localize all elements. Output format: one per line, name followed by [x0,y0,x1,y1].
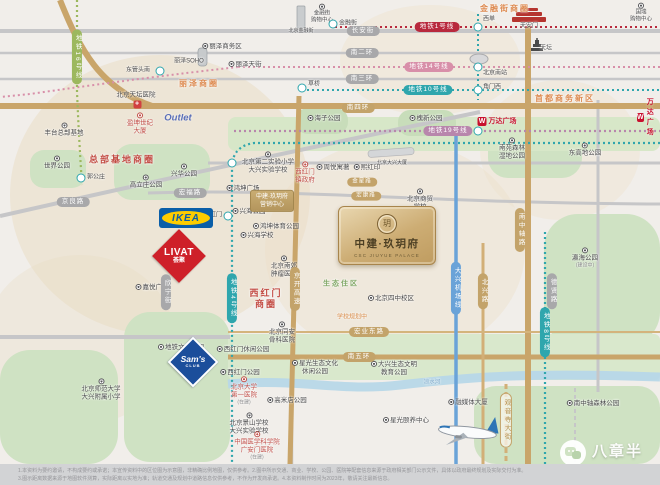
poi-pku-first-hospital: 北京大学第一医院(在建) [231,376,257,406]
pill-metro-line10: 地铁10号线 [403,85,452,95]
poi-donggaodi-park: 东高地公园 [569,142,602,157]
station-guogongzhuang [77,174,86,183]
poi-guanganmen-hospital: 中国医学科学院广安门医院(在建) [234,431,280,461]
poi-yinghai-park: 瀛海公园(建设中) [572,247,598,268]
livat-logo-subtext: 荟聚 [164,258,194,265]
area-shoudushangwu: 首都商务新区 [535,94,595,104]
disclaimer-line-2: 3.图示距离数据来源于地图软件测算，实际距离以实地为准；轨道交通及规划中道路信息… [18,475,648,483]
outlet-logo: Outlet [164,113,191,124]
project-emblem: 玥 [377,214,397,234]
pill-metro-line16: 地铁16号线 [72,29,82,84]
station-xidan [474,23,483,32]
ikea-logo: IKEA [159,208,213,228]
label-daxing-building: 北京大兴大厦 [377,160,407,166]
disclaimer-bar: 1.本资料为要约邀请，不构成要约或承诺；本宣传资料中的区位图为示意图，非精确比例… [0,464,660,485]
pill-jinglianglu: 京良路 [57,197,90,207]
label-guogongzhuang: 郭公庄 [87,174,105,182]
pill-dexianlu: 德贤路 [547,273,557,309]
sams-club-logo: Sam'sCLUB [165,334,221,390]
location-map: IKEA LIVAT荟聚 Sam'sCLUB Outlet W 万达广场 W 万… [0,0,660,485]
station-line19 [474,127,483,136]
poi-xinghai-school: 兴海学校 [241,232,274,240]
label-xidan: 西单 [483,16,495,24]
pill-jingkai-expwy: 京开高速 [290,267,300,311]
poi-lize-tianjie: 丽泽天街 [229,61,262,69]
pill-metro-line8: 地铁8号线 [540,307,550,357]
area-jinrongjie: 金融街商圈 [480,4,530,14]
pill-metro-line19: 地铁19号线 [423,126,472,136]
poi-hongkun-sports-park: 鸿坤体育公园 [253,223,299,231]
poi-zhouyue-yuzhu: 周悦寓著 [317,164,350,172]
poi-no2-experimental-school: 北京第二实验小学大兴实验学校 [242,151,294,174]
poi-xingguang-eco-park: 星光生态文化休闲公园 [292,360,338,376]
poi-fengtai-hq: 丰台总部基地 [45,122,84,137]
project-card: 玥 中建·玖玥府 CSC JIUYUE PALACE [338,206,436,265]
station-caoqiao [298,84,307,93]
wanda-plaza-west: W 万达广场 [478,116,517,126]
poi-xinghua-park: 兴华公园 [171,163,197,178]
pill-metro-line14: 地铁14号线 [404,62,453,72]
livat-logo: LIVAT荟聚 [151,228,207,284]
poi-tiantan-hospital: 北京天坛医院+ [117,91,156,108]
station-jinrongjie [329,20,338,29]
label-jiaomenxi: 角门西 [483,84,501,92]
livat-logo-text: LIVAT [164,247,194,258]
jinrongjie-tower-icon [297,6,305,28]
tag-sales-center: 中建·玖玥府营销中心 [250,190,294,212]
poi-daxing-eco-edu-park: 大兴生态文明教育公园 [371,361,417,377]
ikea-logo-text: IKEA [162,211,210,225]
poi-huaixin-park: 槐新公园 [410,115,443,123]
label-tiantan: 天坛 [540,45,552,53]
label-dongguantounan: 东管头南 [126,67,150,75]
poi-guorui-mall: 国瑞购物中心 [630,3,652,24]
pill-hongye-donglu: 宏业东路 [349,327,389,337]
pill-nanzhongzhoulu: 南中轴路 [515,208,525,252]
wanda-label: 万达广场 [489,116,517,126]
project-name-en: CSC JIUYUE PALACE [354,253,420,258]
poi-world-park: 世界公园 [44,155,70,170]
area-xihongmen: 西红门商圈 [249,288,282,311]
project-name: 中建·玖玥府 [355,236,420,251]
poi-bnu-primary: 北京师范大学大兴附属小学 [82,378,121,401]
area-shengtai: 生态住区 [323,281,359,290]
pill-changanjie: 长安街 [347,26,380,36]
label-school-planning: 学校规划中 [337,314,367,322]
label-tiananmen: 天安门 [520,23,538,31]
poi-sizhong-campus: 北京四中校区 [368,295,414,303]
station-beijingnanzhan [474,63,483,72]
poi-nanzhongzhou-forest-park: 南中轴森林公园 [567,400,620,408]
label-bjjinrongjie-tower: 北京金融街 [288,28,313,34]
area-zongbujidi: 总部基地商圈 [89,154,155,165]
pill-xinningjie: 欣宁街 [161,274,171,310]
pill-guanyinsi-dajie: 观音寺大街 [500,393,512,448]
wanda-icon: W [478,117,487,126]
pill-nansanhuan: 南三环 [346,74,379,84]
pill-hongkanglu: 宏康路 [351,192,381,201]
watermark: 八章半 [560,440,643,461]
pill-nanwuhuan: 南五环 [343,352,376,362]
poi-nanyuan-wetland-park: 南苑森林湿地公园 [499,137,525,160]
poi-xihongmen-leisure-park: 西红门休闲公园 [217,346,270,354]
poi-yingkun-tower: 盈坤世纪大厦 [127,112,153,135]
label-liangshuihe: 凉水河 [424,380,441,387]
poi-xihongmen-gov: 西红门镇政府 [295,161,315,184]
poi-haizi-park: 海子公园 [308,115,341,123]
area-lize: 丽泽商圈 [179,79,219,89]
station-jiaomenxi [474,86,483,95]
label-lizesoho: 丽泽SOHO [174,58,204,66]
pill-nanerhuan: 南二环 [346,48,379,58]
station-line4-cross [228,159,237,168]
map-base-layer [0,0,660,485]
pill-nansihuan: 南四环 [342,103,375,113]
wanda-label: 万达广场 [646,97,655,137]
sams-logo-subtext: CLUB [181,364,206,368]
poi-gaolizhuang-park: 高立庄公园 [130,174,163,189]
station-dongguantounan [156,67,165,76]
pill-beixinglu: 北兴路 [478,273,488,309]
station-xihongmen [224,212,233,221]
label-caoqiao: 草桥 [308,81,320,89]
pill-metro-line4: 地铁4号线 [227,273,237,323]
wanda-icon: W [637,113,644,122]
poi-gaomidian-park: 高米店公园 [267,397,307,405]
pill-airport-express: 大兴机场线 [451,262,461,315]
poi-tongan-hospital: 北京同安骨科医院 [269,321,295,344]
watermark-brand: 八章半 [592,440,643,461]
poi-rongmeiti-tower: 融媒体大厦 [448,399,488,407]
label-beijingnanzhan: 北京南站 [483,70,507,78]
pill-hongfulu: 宏福路 [174,188,207,198]
poi-xingguang-center: 星光颐养中心 [383,417,429,425]
wanda-plaza-east: W 万达广场 [637,97,655,137]
pill-jinxinglu: 金星路 [347,178,377,187]
pill-metro-line1: 地铁1号线 [415,22,460,32]
disclaimer-line-1: 1.本资料为要约邀请，不构成要约或承诺；本宣传资料中的区位图为示意图，非精确比例… [18,467,648,475]
poi-lize-cbd: 丽泽商务区 [202,43,242,51]
poi-xihongyin: 熙红印 [354,164,381,172]
